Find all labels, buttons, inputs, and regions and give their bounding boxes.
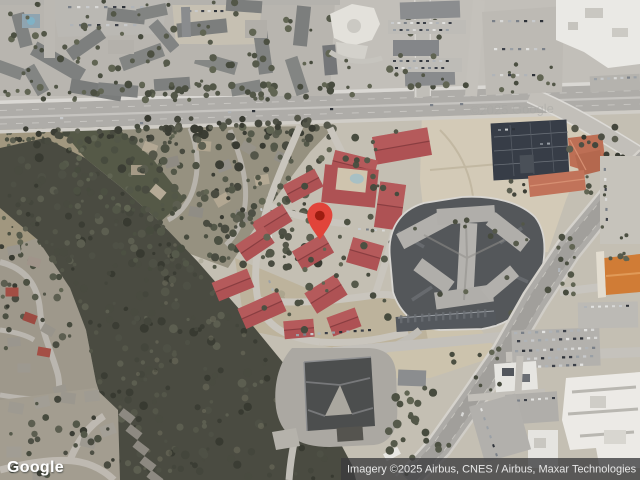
svg-text:Imagery ©2025 Airbus, CNES / A: Imagery ©2025 Airbus, CNES / Airbus, Max…	[347, 464, 637, 476]
svg-text:Google: Google	[7, 459, 64, 476]
svg-text:©2025 Google: ©2025 Google	[470, 101, 554, 118]
